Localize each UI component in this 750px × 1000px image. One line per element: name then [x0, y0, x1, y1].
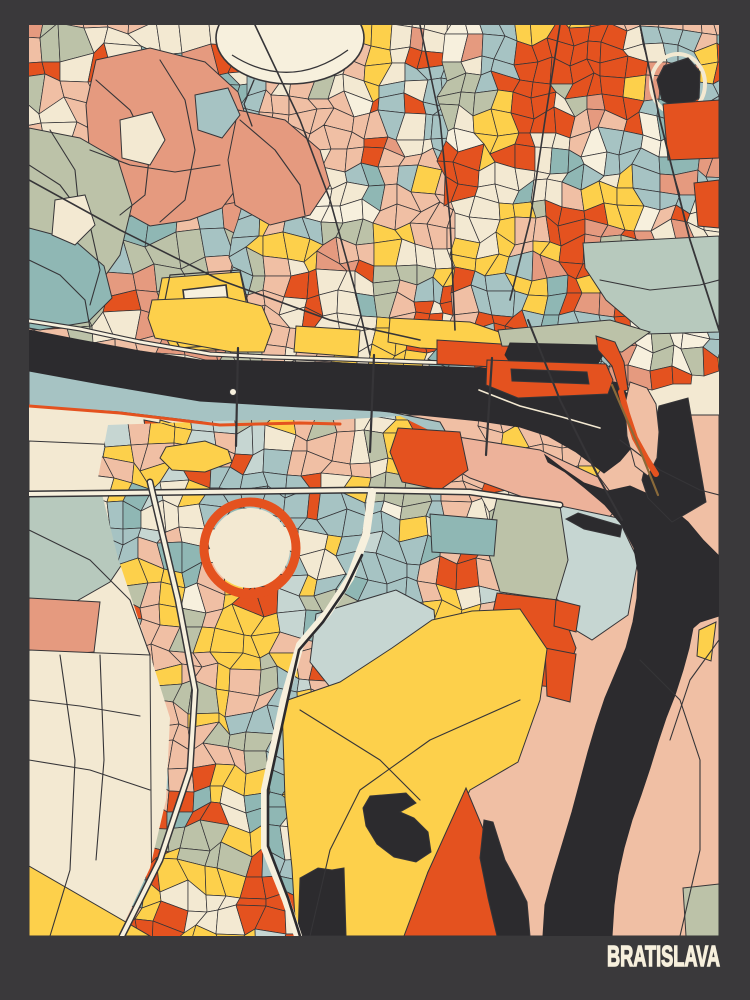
svg-text:BRATISLAVA: BRATISLAVA [607, 941, 720, 973]
